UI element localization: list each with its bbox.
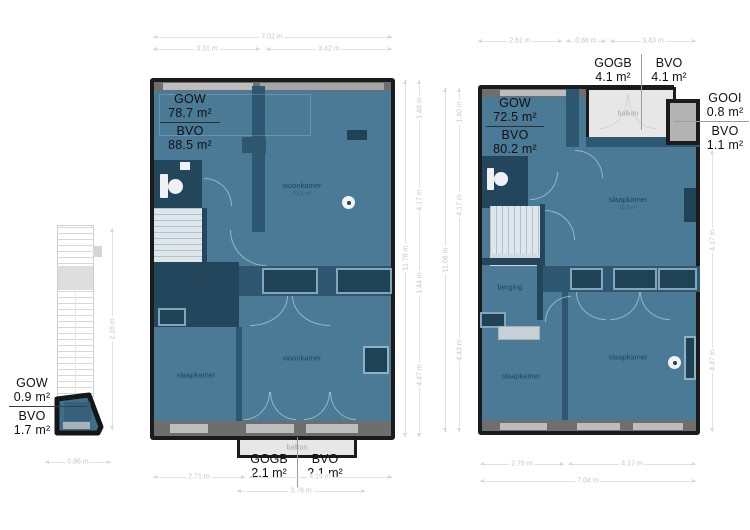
dim-label: 2.76 m: [509, 461, 534, 468]
room-name: berging: [497, 283, 522, 292]
dim-line: [459, 88, 460, 432]
floor1-top-window-right: [260, 83, 384, 90]
floor1-top-window-left: [163, 83, 253, 90]
floor1-bottom-window: [306, 424, 358, 433]
room-name: slaapkamer: [177, 371, 216, 380]
stair-steps-upper: [58, 227, 93, 265]
bed: [498, 326, 540, 340]
toilet-tank: [487, 168, 494, 190]
gooi-area-label: GOOI 0.8 m² BVO 1.1 m²: [701, 92, 749, 152]
dim-label: 4.17 m: [710, 227, 717, 252]
entry-vestibule-shape: [51, 391, 107, 439]
dim-label: 3.31 m: [194, 46, 219, 53]
dim-label: 3.43 m: [640, 38, 665, 45]
bvo-label: BVO: [297, 452, 353, 466]
wall-segment: [482, 258, 542, 265]
stair-width-dim-label: 0.86 m: [65, 459, 90, 466]
room-label-living-top: woonkamer 41.5 m²: [283, 181, 322, 197]
room-name: woonkamer: [283, 354, 322, 363]
floor1-gow-label: GOW: [158, 93, 222, 107]
floor2-stairs: [490, 206, 540, 254]
sink: [180, 162, 190, 170]
room-label-bedroom-right: slaapkamer: [609, 353, 648, 362]
floor2-top-right-notch: [674, 81, 702, 101]
dim-label: 4.47 m: [417, 362, 424, 387]
wall-recess: [347, 130, 367, 140]
fraction-divider: [486, 126, 544, 127]
toilet-bowl: [168, 179, 183, 194]
room-label-bedroom-left: slaapkamer: [502, 372, 541, 381]
gogb-label: GOGB: [585, 56, 641, 70]
dim-label: 11.08 m: [443, 246, 450, 275]
room-name: woonkamer: [283, 181, 322, 190]
floor1-bvo-label: BVO: [158, 125, 222, 139]
room-name: slaapkamer: [502, 372, 541, 381]
dim-label: 3.78 m: [288, 488, 313, 495]
wall-recess: [684, 188, 696, 222]
gooi-bvo-label: BVO: [701, 125, 749, 139]
wall-segment: [236, 327, 242, 421]
right-wall-unit: [363, 346, 389, 374]
wall-lamp-icon: [668, 356, 681, 369]
interior-window-frame: [658, 268, 697, 290]
floor2-bottom-window: [633, 423, 683, 430]
dim-label: 11.78 m: [403, 244, 410, 273]
room-area: 16.9 m²: [609, 205, 648, 211]
dim-label: 1.40 m: [457, 99, 464, 124]
dim-label: 4.17 m: [619, 461, 644, 468]
dim-label: 0.88 m: [573, 38, 598, 45]
toilet-tank: [160, 174, 168, 198]
gogb-value: 4.1 m²: [585, 70, 641, 84]
gogb-label: GOGB: [241, 452, 297, 466]
room-name: slaapkamer: [609, 195, 648, 204]
floor2-balcony-label: balkon: [618, 111, 639, 118]
floor1-area-label: GOW 78.7 m² BVO 88.5 m²: [158, 93, 222, 152]
interior-window-frame: [262, 268, 318, 294]
dim-label: 1.44 m: [417, 270, 424, 295]
stair-rail-line: [75, 291, 76, 395]
room-area: 41.5 m²: [283, 191, 322, 197]
dim-label: 2.71 m: [186, 474, 211, 481]
dim-label: 4.47 m: [710, 347, 717, 372]
interior-window-frame: [570, 268, 603, 290]
dim-label: 3.42 m: [316, 46, 341, 53]
floor2-bvo-label: BVO: [484, 129, 546, 143]
floor2-gow-value: 72.5 m²: [484, 111, 546, 125]
room-label-living-bottom: woonkamer: [283, 354, 322, 363]
stair-landing: [58, 266, 93, 290]
room-label-bedroom-top: slaapkamer 16.9 m²: [609, 195, 648, 211]
right-wall-unit: [684, 336, 696, 380]
stair-bvo-label: BVO: [6, 410, 58, 424]
wall-segment: [566, 89, 579, 147]
stair-gow-label: GOW: [6, 377, 58, 391]
dim-label: 4.19 m: [307, 474, 332, 481]
interior-window-frame: [613, 268, 657, 290]
dim-label: 4.17 m: [417, 187, 424, 212]
floor1-gow-value: 78.7 m²: [158, 107, 222, 121]
floor1-bottom-window: [246, 424, 294, 433]
floor2-bottom-window: [577, 423, 620, 430]
floor2-bottom-window: [500, 423, 547, 430]
fraction-divider: [160, 122, 220, 123]
bvo-value: 4.1 m²: [641, 70, 697, 84]
stair-area-label: GOW 0.9 m² BVO 1.7 m²: [6, 377, 58, 437]
floor1-stairs: [154, 208, 202, 262]
interior-window-frame: [336, 268, 392, 294]
interior-window-frame: [158, 308, 186, 326]
floor1-bottom-window: [170, 424, 208, 433]
wall-segment: [202, 208, 207, 262]
floor2-area-label: GOW 72.5 m² BVO 80.2 m²: [484, 97, 546, 156]
dim-label: 7.04 m: [575, 478, 600, 485]
dim-label: 4.43 m: [457, 337, 464, 362]
floor1-bvo-value: 88.5 m²: [158, 139, 222, 153]
dim-label: 4.17 m: [457, 192, 464, 217]
floor2-gow-label: GOW: [484, 97, 546, 111]
floor1-balcony-area-label: GOGB 2.1 m² BVO 2.1 m²: [241, 452, 353, 480]
dim-label: 2.61 m: [507, 38, 532, 45]
floor2-balcony-area-label: GOGB 4.1 m² BVO 4.1 m²: [585, 56, 697, 84]
floor2-bvo-value: 80.2 m²: [484, 143, 546, 157]
gooi-bvo-value: 1.1 m²: [701, 139, 749, 153]
wall-segment: [242, 137, 266, 153]
stair-height-dim-label: 2.16 m: [110, 316, 117, 341]
wall-lamp-icon: [342, 196, 355, 209]
gooi-label: GOOI: [701, 92, 749, 106]
stair-notch: [93, 246, 102, 257]
stair-bvo-value: 1.7 m²: [6, 424, 58, 438]
room-label-storage: berging: [497, 283, 522, 292]
dim-line: [712, 150, 713, 432]
gooi-value: 0.8 m²: [701, 106, 749, 120]
dim-label: 7.02 m: [259, 34, 284, 41]
toilet-bowl: [494, 172, 508, 186]
floor2-gooi-box: [666, 99, 700, 145]
bvo-label: BVO: [641, 56, 697, 70]
room-name: slaapkamer: [609, 353, 648, 362]
floorplan-page: GOW 0.9 m² BVO 1.7 m² 2.16 m 0.86 m: [0, 0, 750, 530]
stair-gow-value: 0.9 m²: [6, 391, 58, 405]
room-label-bedroom: slaapkamer: [177, 371, 216, 380]
dim-label: 1.48 m: [417, 95, 424, 120]
